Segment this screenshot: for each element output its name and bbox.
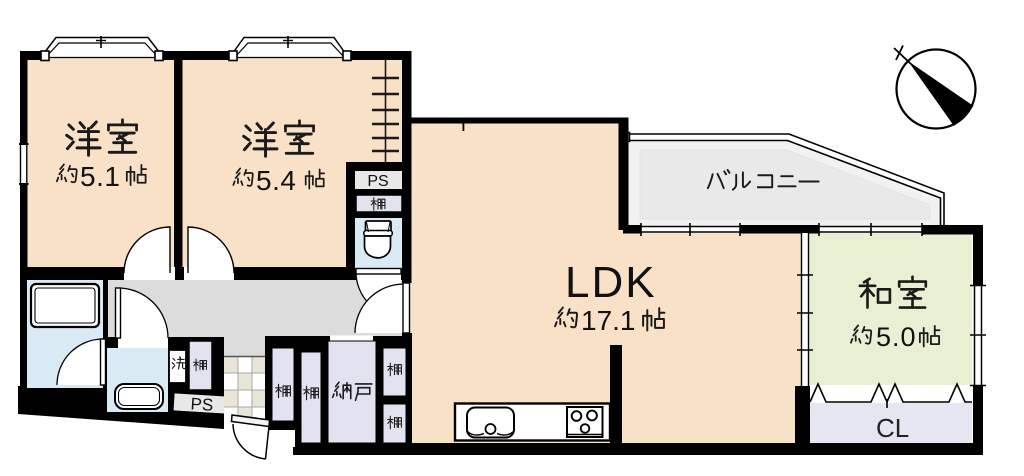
svg-text:CL: CL <box>876 413 909 443</box>
svg-text:5.0: 5.0 <box>876 322 917 352</box>
svg-text:5.1: 5.1 <box>80 161 120 192</box>
svg-text:PS: PS <box>367 173 388 190</box>
svg-text:17.1: 17.1 <box>581 305 636 336</box>
svg-text:LDK: LDK <box>565 258 657 307</box>
svg-text:5.4: 5.4 <box>256 165 296 196</box>
svg-text:PS: PS <box>190 394 214 414</box>
